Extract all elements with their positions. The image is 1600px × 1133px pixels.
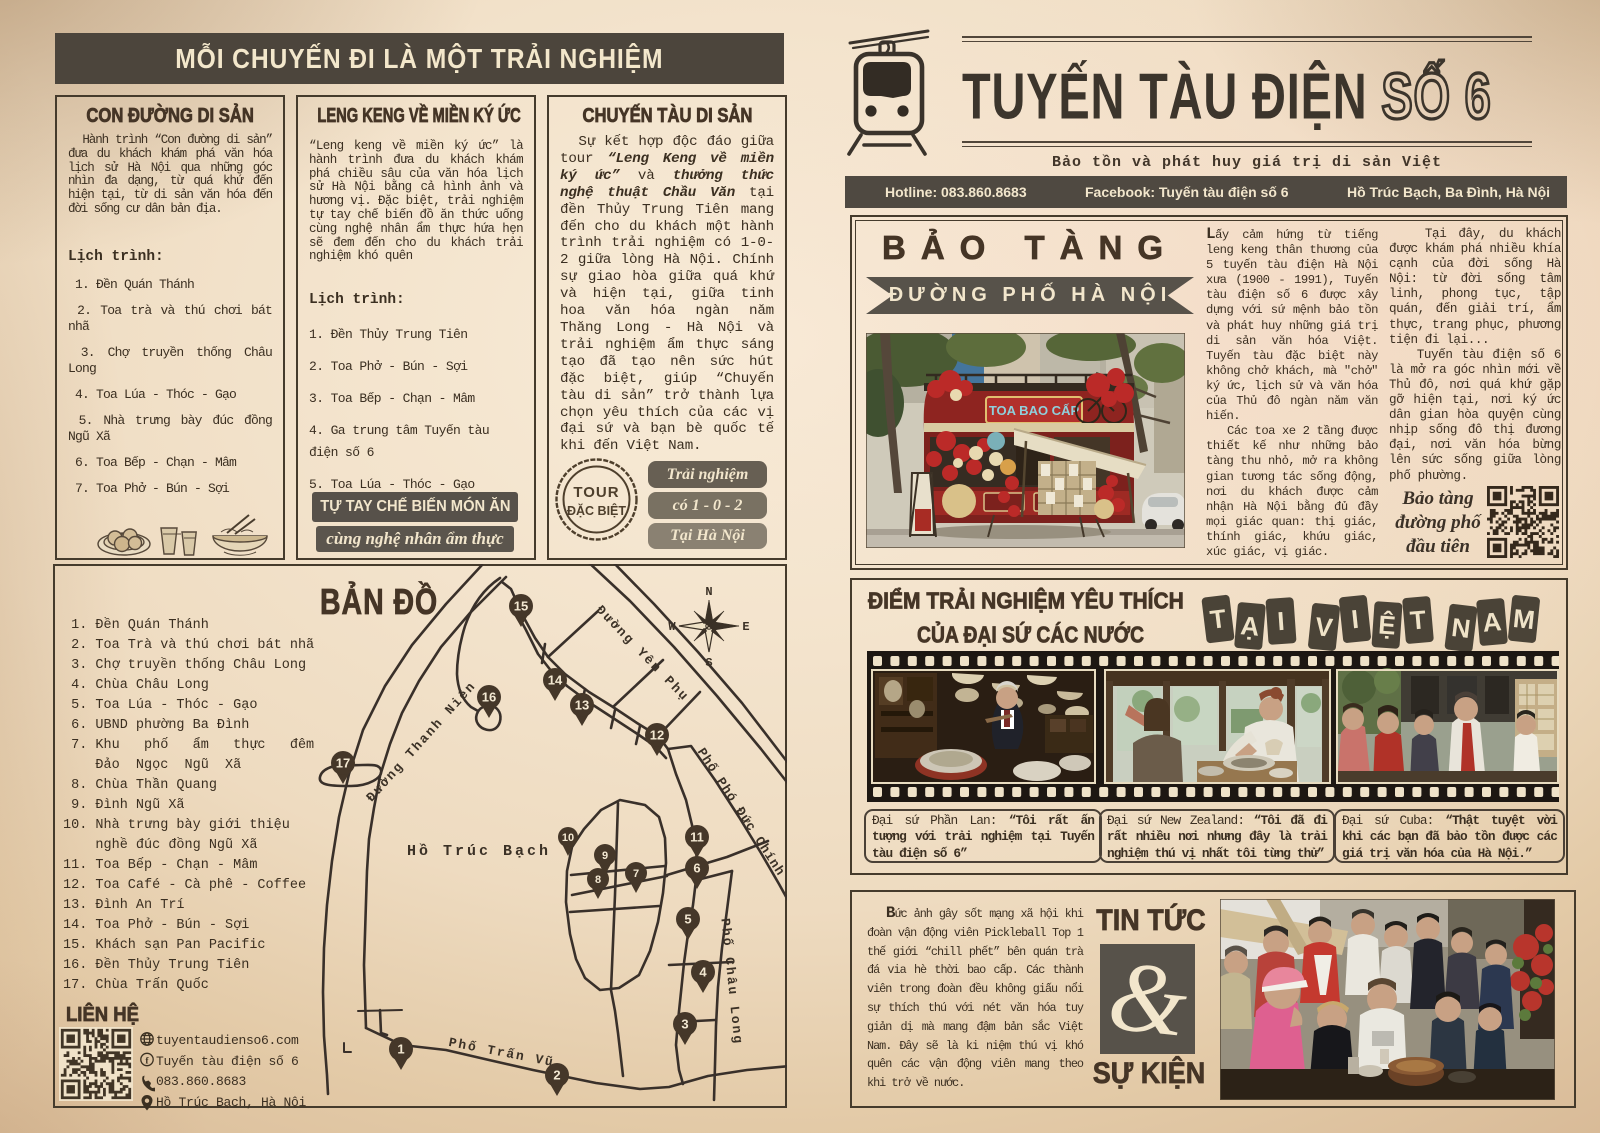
svg-text:9: 9 — [602, 850, 608, 862]
svg-text:E: E — [742, 620, 749, 634]
svg-text:17: 17 — [336, 756, 350, 771]
svg-text:15: 15 — [514, 599, 528, 614]
svg-text:Phố Trấn Vũ: Phố Trấn Vũ — [447, 1035, 556, 1070]
svg-text:8: 8 — [595, 874, 601, 886]
svg-text:1: 1 — [397, 1042, 404, 1057]
svg-text:3: 3 — [681, 1017, 688, 1032]
svg-text:14: 14 — [548, 673, 563, 688]
svg-text:11: 11 — [690, 830, 704, 845]
svg-text:4: 4 — [699, 965, 707, 980]
svg-text:13: 13 — [575, 698, 589, 713]
svg-text:S: S — [705, 656, 712, 670]
svg-text:ĐẶC BIỆT: ĐẶC BIỆT — [567, 503, 626, 518]
svg-text:Đường Yên Phụ: Đường Yên Phụ — [593, 603, 692, 705]
svg-text:N: N — [705, 585, 712, 599]
svg-text:10: 10 — [562, 832, 574, 844]
svg-text:7: 7 — [633, 868, 639, 880]
svg-text:5: 5 — [684, 912, 691, 927]
svg-text:Phố Châu Long: Phố Châu Long — [717, 917, 745, 1045]
svg-text:TOUR: TOUR — [573, 484, 619, 501]
svg-text:2: 2 — [553, 1068, 560, 1083]
svg-text:16: 16 — [482, 690, 496, 705]
svg-text:W: W — [668, 620, 676, 634]
svg-text:Hồ Trúc Bạch: Hồ Trúc Bạch — [407, 843, 551, 860]
svg-text:6: 6 — [693, 861, 700, 876]
svg-text:12: 12 — [650, 728, 664, 743]
svg-text:TOA BAO CẤP: TOA BAO CẤP — [989, 403, 1080, 418]
